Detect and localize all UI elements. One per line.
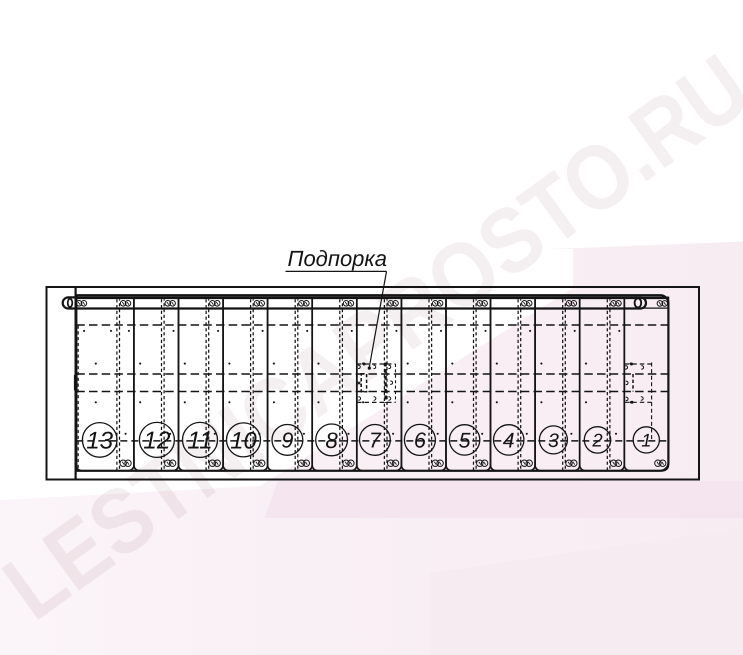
svg-text:Подпорка: Подпорка: [288, 246, 388, 271]
svg-text:11: 11: [187, 428, 212, 455]
svg-text:9: 9: [281, 428, 293, 453]
svg-text:5: 5: [459, 429, 471, 453]
svg-text:12: 12: [143, 428, 171, 455]
svg-text:7: 7: [369, 428, 382, 453]
svg-text:3: 3: [548, 430, 559, 452]
svg-text:6: 6: [414, 428, 427, 453]
svg-text:4: 4: [503, 429, 515, 453]
svg-text:8: 8: [325, 428, 338, 453]
svg-text:2: 2: [591, 430, 603, 451]
svg-text:1: 1: [641, 429, 651, 450]
svg-text:13: 13: [86, 428, 113, 455]
svg-text:10: 10: [230, 427, 257, 454]
